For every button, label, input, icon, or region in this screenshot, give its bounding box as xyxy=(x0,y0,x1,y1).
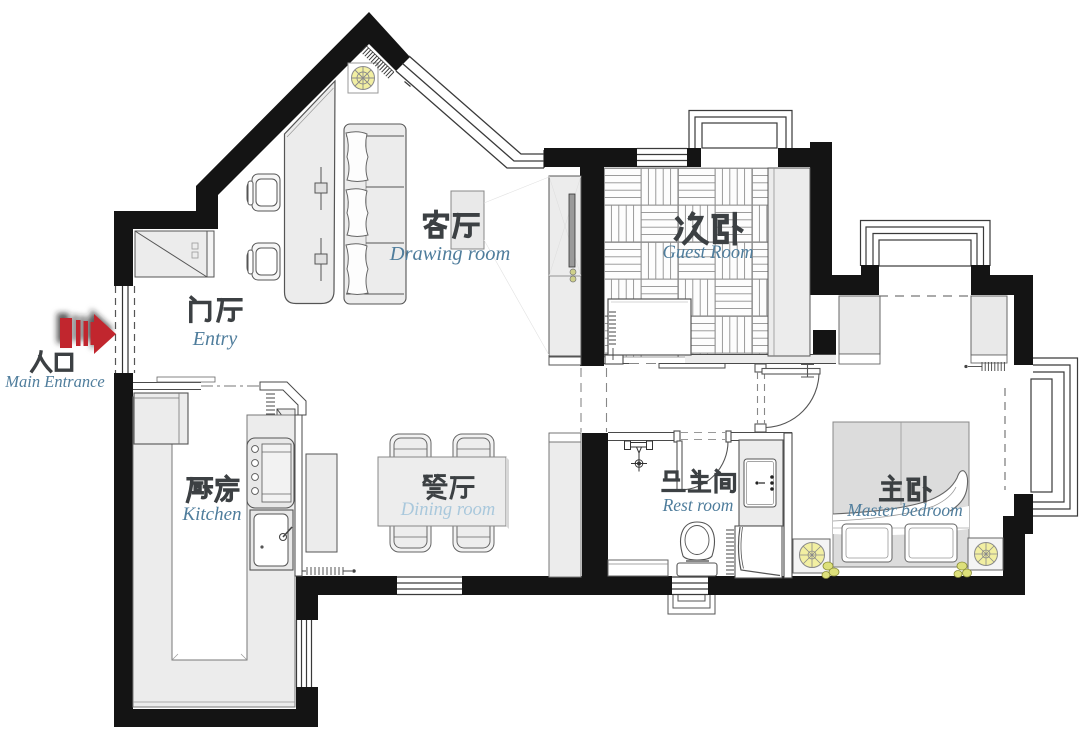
svg-text:Drawing room: Drawing room xyxy=(389,243,511,265)
svg-text:Entry: Entry xyxy=(192,328,238,350)
svg-text:Kitchen: Kitchen xyxy=(181,504,241,525)
svg-text:Rest room: Rest room xyxy=(662,495,734,515)
svg-text:Guest Room: Guest Room xyxy=(663,243,754,263)
svg-text:Master bedroom: Master bedroom xyxy=(846,500,963,520)
svg-text:Main Entrance: Main Entrance xyxy=(4,372,104,391)
svg-text:Dining room: Dining room xyxy=(400,500,495,520)
